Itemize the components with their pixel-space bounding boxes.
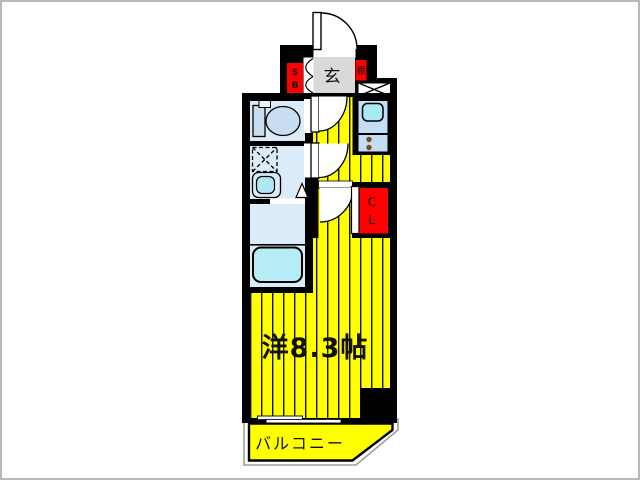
entrance-door-leaf — [313, 13, 321, 50]
balcony-label: バルコニー — [255, 434, 345, 453]
kitchen — [353, 96, 393, 155]
toilet-tank — [253, 106, 265, 137]
floor-plan-page: バルコニー 玄 S B 棚 — [0, 0, 640, 480]
bathroom-door-opening — [270, 199, 305, 205]
shelf-label: 棚 — [356, 65, 365, 77]
window-sash-right — [266, 419, 341, 423]
shoe-box-label-b: B — [292, 81, 299, 91]
wash-basin-bowl — [257, 177, 275, 194]
shelf: 棚 — [356, 60, 367, 81]
floor-plan-drawing: バルコニー 玄 S B 棚 — [0, 0, 640, 480]
toilet-room — [250, 101, 305, 142]
toilet-cistern-box — [259, 101, 271, 108]
washroom — [250, 146, 308, 205]
closet-door-leaf — [352, 187, 360, 234]
closet-label-c: C — [368, 194, 377, 209]
washroom-door-leaf — [311, 143, 319, 178]
bathtub — [253, 248, 302, 283]
main-room-door-opening — [319, 181, 353, 188]
bathtub-edge-line — [250, 244, 305, 246]
stove-burner-1 — [366, 137, 371, 142]
kitchen-counter-divider — [358, 133, 388, 135]
main-room-size-label: 洋8.3帖 — [262, 332, 369, 364]
toilet-door-leaf — [311, 96, 319, 132]
stove-burner-2 — [366, 145, 371, 150]
genkan-label: 玄 — [324, 67, 341, 87]
closet: C L — [352, 182, 393, 238]
kitchen-sink — [363, 104, 384, 122]
shoe-box-label-s: S — [292, 68, 298, 78]
toilet-bowl — [266, 107, 300, 136]
bathroom — [250, 204, 305, 287]
closet-label-l: L — [369, 212, 376, 227]
main-room-door-jamb-wall — [311, 178, 319, 238]
genkan: 玄 — [314, 57, 356, 98]
